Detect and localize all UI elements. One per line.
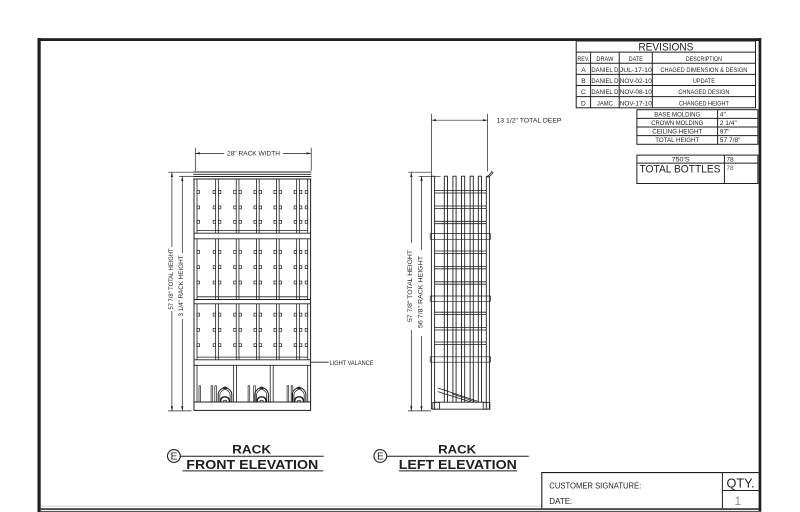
svg-text:DANIEL D: DANIEL D (591, 67, 618, 74)
svg-text:E: E (377, 452, 384, 463)
svg-text:CEILING HEIGHT: CEILING HEIGHT (652, 129, 702, 136)
svg-text:1: 1 (734, 494, 741, 508)
svg-text:A: A (581, 67, 586, 74)
svg-text:NOV-08-10: NOV-08-10 (620, 89, 652, 96)
svg-text:DRAW: DRAW (596, 56, 614, 63)
svg-text:RACK: RACK (438, 442, 477, 456)
svg-text:4": 4" (720, 111, 727, 118)
svg-text:57 7/8" TOTAL HEIGHT: 57 7/8" TOTAL HEIGHT (407, 250, 414, 322)
svg-text:DESCRIPTION: DESCRIPTION (686, 56, 722, 63)
svg-text:3 1/4" RACK HEIGHT: 3 1/4" RACK HEIGHT (178, 256, 185, 317)
svg-text:750'S: 750'S (672, 156, 691, 163)
svg-text:FRONT ELEVATION: FRONT ELEVATION (186, 457, 318, 472)
svg-text:BASE MOLDING: BASE MOLDING (654, 111, 700, 118)
svg-text:E: E (171, 452, 178, 463)
svg-text:TOTAL BOTTLES: TOTAL BOTTLES (640, 164, 721, 176)
svg-text:REV.: REV. (577, 56, 589, 63)
svg-text:JAMC: JAMC (597, 100, 613, 107)
svg-text:CHNAGED DESIGN: CHNAGED DESIGN (678, 89, 729, 96)
svg-text:LIGHT VALANCE: LIGHT VALANCE (330, 360, 375, 367)
svg-text:97": 97" (720, 129, 730, 136)
svg-text:78: 78 (726, 156, 734, 163)
svg-text:RACK: RACK (232, 442, 272, 456)
svg-text:57 7/8" TOTAL HEIGHT: 57 7/8" TOTAL HEIGHT (168, 249, 175, 310)
svg-text:JUL-17-10: JUL-17-10 (620, 67, 652, 74)
svg-text:CHANGED HEIGHT: CHANGED HEIGHT (679, 100, 729, 107)
svg-text:57 7/8": 57 7/8" (720, 137, 741, 144)
svg-text:QTY.: QTY. (727, 475, 755, 490)
svg-text:56 7/8" RACK HEIGHT: 56 7/8" RACK HEIGHT (417, 256, 424, 328)
svg-text:REVISIONS: REVISIONS (638, 42, 693, 54)
svg-text:CUSTOMER SIGNATURE:: CUSTOMER SIGNATURE: (549, 482, 641, 491)
svg-text:13 1/2" TOTAL DEEP: 13 1/2" TOTAL DEEP (497, 118, 563, 125)
svg-text:DATE: DATE (629, 56, 643, 63)
svg-text:NOV-02-10: NOV-02-10 (620, 78, 652, 85)
svg-text:B: B (581, 78, 586, 85)
svg-text:CROWN MOLDING: CROWN MOLDING (651, 120, 703, 127)
svg-text:28" RACK WIDTH: 28" RACK WIDTH (227, 151, 280, 158)
svg-text:2 1/4": 2 1/4" (720, 120, 738, 127)
svg-text:78: 78 (726, 165, 734, 172)
svg-text:UPDATE: UPDATE (693, 78, 715, 85)
svg-text:DANIEL D: DANIEL D (591, 78, 618, 85)
svg-text:LEFT ELEVATION: LEFT ELEVATION (399, 457, 517, 472)
svg-text:C: C (581, 89, 586, 96)
svg-text:CHAGED DIMENSION & DESIGN: CHAGED DIMENSION & DESIGN (660, 67, 747, 74)
svg-text:DANIEL D: DANIEL D (591, 89, 618, 96)
svg-text:D: D (581, 100, 586, 107)
svg-text:DATE:: DATE: (549, 497, 572, 506)
svg-text:NOV-17-10: NOV-17-10 (620, 100, 652, 107)
svg-text:TOTAL HEIGHT: TOTAL HEIGHT (655, 137, 699, 144)
